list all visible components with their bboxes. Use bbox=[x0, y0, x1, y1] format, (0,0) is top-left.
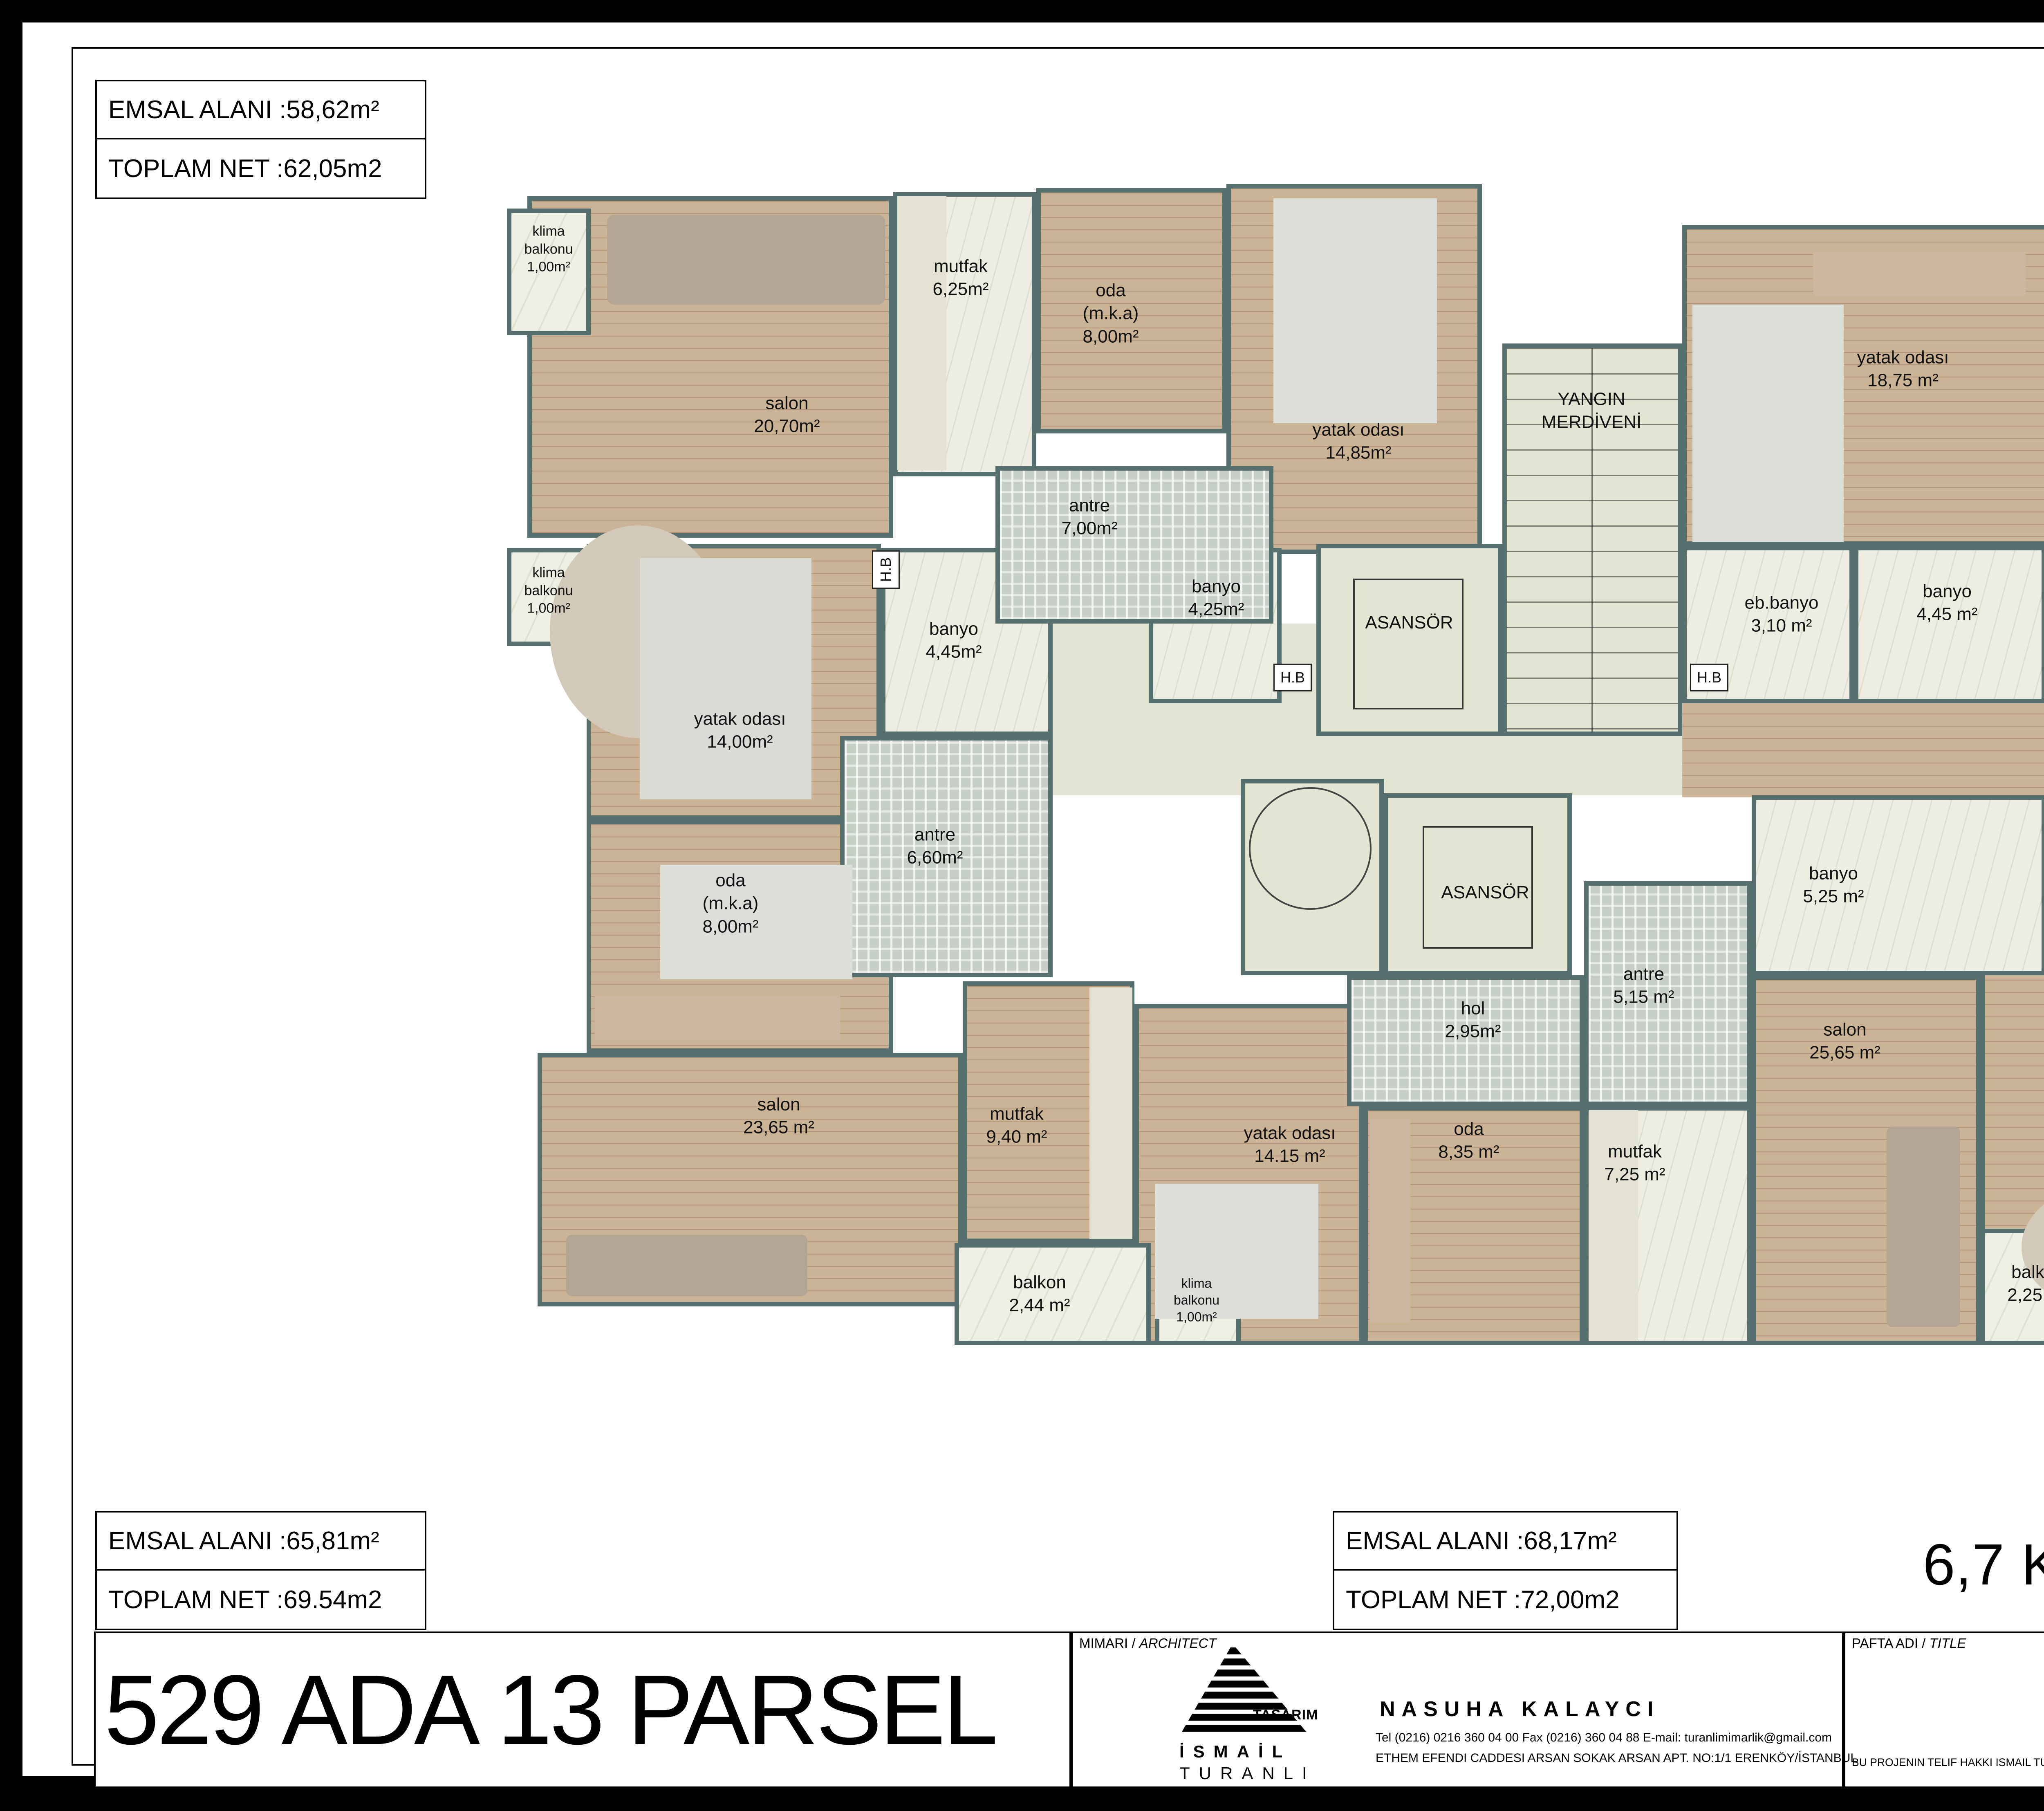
plan-label-salon-1850: salon 23,65 m² bbox=[743, 1093, 814, 1140]
emsal-alani-bottom-left: EMSAL ALANI :65,81m² bbox=[97, 1513, 425, 1571]
contact-line-1: Tel (0216) 0216 360 04 00 Fax (0216) 360… bbox=[1376, 1731, 1832, 1745]
room-banyo-5-25 bbox=[1752, 795, 2044, 975]
plan-label-banyo-2920: banyo 4,25m² bbox=[1188, 575, 1244, 622]
toplam-net-bottom-middle: TOPLAM NET :72,00m2 bbox=[1334, 1571, 1676, 1629]
decor-sofa-2365 bbox=[566, 1235, 807, 1296]
plan-label-hol-3548: hol 2,95m² bbox=[1445, 997, 1501, 1044]
plan-label-oda-3538: oda 8,35 m² bbox=[1438, 1118, 1499, 1164]
decor-bed-1875 bbox=[1692, 305, 1844, 542]
plan-label-h-b-2112: H.B bbox=[872, 550, 900, 589]
info-box-top-left: EMSAL ALANI :58,62m² TOPLAM NET :62,05m2 bbox=[95, 80, 426, 199]
plan-label-banyo-4430: banyo 5,25 m² bbox=[1803, 862, 1864, 909]
info-box-bottom-middle: EMSAL ALANI :68,17m² TOPLAM NET :72,00m2 bbox=[1333, 1511, 1678, 1630]
copyright-note: BU PROJENIN TELIF HAKKI ISMAIL TURANLI M… bbox=[1852, 1756, 2044, 1769]
parcel-title: 529 ADA 13 PARSEL bbox=[94, 1631, 1071, 1788]
plan-label-antre-2232: antre 6,60m² bbox=[907, 824, 963, 870]
toplam-net-bottom-left: TOPLAM NET :69.54m2 bbox=[97, 1571, 425, 1629]
plan-label-balkon-2488: balkon 2,44 m² bbox=[1009, 1271, 1070, 1317]
plan-label-banyo-4708: banyo 4,45 m² bbox=[1916, 580, 1977, 626]
decor-elevator-door-top bbox=[1353, 579, 1464, 709]
plan-label-antre-2610: antre 7,00m² bbox=[1062, 494, 1118, 541]
emsal-alani-top-left: EMSAL ALANI :58,62m² bbox=[97, 81, 425, 139]
decor-bed-1400 bbox=[640, 558, 811, 799]
plan-label-antre-3966: antre 5,15 m² bbox=[1613, 963, 1674, 1009]
plan-label-banyo-2278: banyo 4,45m² bbox=[926, 618, 982, 664]
plan-label-mutfak-2295: mutfak 6,25m² bbox=[933, 255, 989, 301]
plan-label-h-b-4126: H.B bbox=[1690, 664, 1728, 691]
plan-label-yangin-3838: YANGIN MERDİVENİ bbox=[1542, 388, 1641, 434]
plan-label-oda-2662: oda (m.k.a) 8,00m² bbox=[1083, 279, 1139, 348]
plan-label-yatak-odas-4600: yatak odası 18,75 m² bbox=[1857, 346, 1949, 393]
plan-label-eb-banyo-4303: eb.banyo 3,10 m² bbox=[1744, 592, 1818, 638]
plan-label-yatak-odas-1755: yatak odası 14,00m² bbox=[694, 708, 786, 754]
architect-name: NASUHA KALAYCI bbox=[1380, 1697, 1660, 1721]
plan-label-mutfak-2432: mutfak 9,40 m² bbox=[986, 1103, 1047, 1149]
plan-label-yatak-odas-3268: yatak odası 14,85m² bbox=[1312, 419, 1404, 465]
contact-line-2: ETHEM EFENDI CADDESI ARSAN SOKAK ARSAN A… bbox=[1376, 1751, 1857, 1765]
decor-sofa-top-left bbox=[607, 215, 885, 305]
drawing-sheet: klima balkonu 1,00m²salon 20,70m²mutfak … bbox=[22, 22, 2044, 1776]
decor-wardrobe-1875 bbox=[1813, 251, 2026, 296]
pafta-adi-label: PAFTA ADI / TITLE bbox=[1852, 1636, 1966, 1651]
plan-label-salon-4458: salon 25,65 m² bbox=[1809, 1019, 1880, 1065]
mimari-architect-label: MIMARI / ARCHITECT bbox=[1079, 1636, 1217, 1651]
plan-label-h-b-3107: H.B bbox=[1273, 664, 1312, 691]
plan-title: 6,7 KAT PLANI bbox=[1813, 1531, 2044, 1598]
decor-wardrobe-oda-left bbox=[595, 996, 840, 1041]
room-wood-filler-right bbox=[1682, 701, 2044, 797]
plan-label-klima-2872: klima balkonu 1,00m² bbox=[1174, 1275, 1219, 1326]
emsal-alani-bottom-middle: EMSAL ALANI :68,17m² bbox=[1334, 1513, 1676, 1571]
decor-sofa-2565 bbox=[1887, 1127, 1960, 1327]
toplam-net-top-left: TOPLAM NET :62,05m2 bbox=[97, 139, 425, 197]
decor-counter-625 bbox=[897, 196, 946, 470]
decor-bed-1485 bbox=[1273, 198, 1437, 423]
plan-label-salon-1870: salon 20,70m² bbox=[754, 392, 820, 438]
info-box-bottom-left: EMSAL ALANI :65,81m² TOPLAM NET :69.54m2 bbox=[95, 1511, 426, 1630]
decor-wardrobe-oda835 bbox=[1369, 1118, 1410, 1323]
firm-name-line1: İSMAİL bbox=[1179, 1742, 1291, 1762]
plan-label-asans-r-3392: ASANSÖR bbox=[1365, 611, 1453, 634]
plan-label-balkon-4930: balkon 2,25 m² bbox=[2007, 1261, 2044, 1307]
decor-spiral-circle bbox=[1249, 787, 1372, 910]
plan-label-yatak-odas-3100: yatak odası 14.15 m² bbox=[1244, 1122, 1336, 1168]
plan-label-oda-1732: oda (m.k.a) 8,00m² bbox=[703, 869, 759, 938]
tasarim-logo-word: TASARIM bbox=[1253, 1707, 1318, 1723]
firm-name-line2: TURANLI bbox=[1179, 1764, 1316, 1783]
plan-label-asans-r-3578: ASANSÖR bbox=[1441, 881, 1529, 904]
decor-counter-940 bbox=[1089, 987, 1132, 1239]
plan-label-klima-1287: klima balkonu 1,00m² bbox=[524, 564, 573, 618]
plan-label-mutfak-3944: mutfak 7,25 m² bbox=[1604, 1140, 1665, 1187]
plan-label-klima-1287: klima balkonu 1,00m² bbox=[524, 223, 573, 276]
